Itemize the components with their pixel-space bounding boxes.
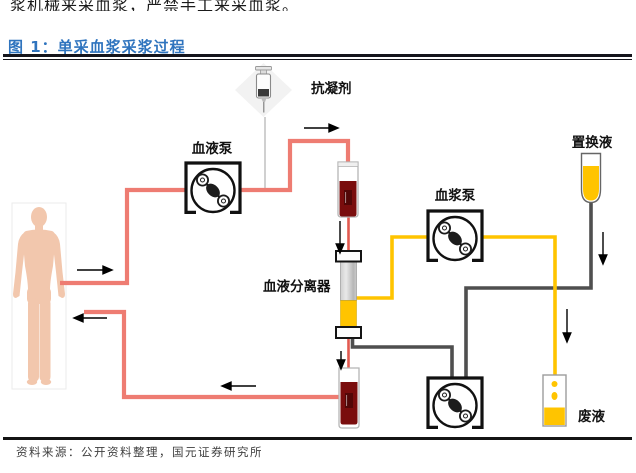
cutoff-body-text: 浆机械来采血浆，严禁手工来采血浆。 [10, 0, 636, 11]
return-line-to-donor [84, 312, 345, 397]
figure-bottom-divider [3, 437, 632, 440]
label-anticoagulant: 抗凝剂 [311, 80, 352, 97]
cutoff-body-text-line: 浆机械来采血浆，严禁手工来采血浆。 [10, 0, 636, 11]
report-page: { "page": { "top_cut_text": "浆机械来采血浆，严禁手… [0, 0, 636, 473]
plasma-collection-diagram: 血液泵 抗凝剂 置换液 血浆泵 血液分离器 废液 [0, 60, 636, 437]
arrow-right-donor-out [77, 266, 112, 274]
label-replacement-fluid: 置换液 [572, 134, 613, 151]
arrow-down-separator-to-tube [337, 351, 345, 369]
arrow-left-donor-return [74, 314, 107, 322]
arrow-left-return-line [222, 382, 256, 390]
label-blood-separator: 血液分离器 [263, 278, 331, 295]
label-plasma-pump: 血浆泵 [435, 187, 476, 204]
anticoagulant-syringe [235, 63, 292, 117]
label-blood-pump: 血液泵 [192, 140, 233, 157]
blood-separator-column [336, 251, 361, 338]
arrow-down-waste [563, 309, 571, 342]
arrow-right-anticoagulant [304, 124, 338, 132]
blood-pump-icon [185, 162, 242, 215]
blood-tube-upper [338, 162, 358, 217]
return-pump-icon [427, 377, 484, 430]
blood-tube-lower [339, 368, 359, 428]
donor-figure [12, 203, 66, 389]
arrow-down-replacement [599, 232, 607, 264]
replacement-fluid-bottle [582, 154, 601, 203]
label-waste-fluid: 废液 [578, 408, 606, 425]
plasma-pump-icon [427, 210, 484, 263]
waste-container [543, 375, 566, 426]
replacement-fluid-line [466, 198, 591, 380]
separator-to-pump-line [353, 332, 453, 380]
diagram-canvas: 血液泵 抗凝剂 置换液 血浆泵 血液分离器 废液 [0, 60, 636, 437]
source-note: 资料来源：公开资料整理，国元证券研究所 [16, 444, 263, 460]
arrow-down-tube-to-separator [336, 221, 344, 253]
